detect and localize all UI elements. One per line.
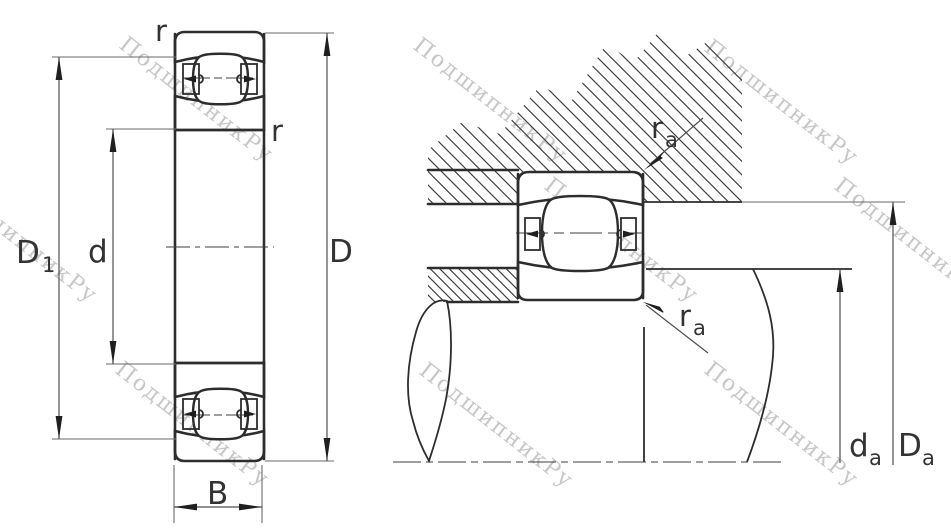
label-outer-D: D xyxy=(329,234,353,270)
label-da: d xyxy=(849,428,869,464)
barrel-roller xyxy=(193,54,248,105)
dimension-arrow xyxy=(56,57,63,80)
label-Da: D xyxy=(898,428,922,464)
shaft-break-curve xyxy=(747,269,773,462)
label-D1-subscript: 1 xyxy=(42,253,55,277)
dimension-arrow xyxy=(324,438,331,461)
label-chamfer-r-top: r xyxy=(155,14,167,48)
label-ra-top-subscript: a xyxy=(665,128,678,152)
label-da-subscript: a xyxy=(869,446,882,470)
dimension-arrow xyxy=(110,341,117,364)
watermark-text: ПодшипникРу xyxy=(699,357,863,493)
label-bore-d: d xyxy=(88,234,108,270)
label-width-B: B xyxy=(207,476,228,512)
label-ra-bottom: r xyxy=(679,299,691,333)
shaft-shoulder xyxy=(428,268,518,302)
dimension-d xyxy=(106,129,176,364)
dimension-arrow xyxy=(56,416,63,439)
watermark-text: ПодшипникРу xyxy=(110,357,274,493)
dimension-da xyxy=(837,269,844,463)
dimension-arrow xyxy=(324,33,331,56)
label-ra-bottom-subscript: a xyxy=(693,316,706,340)
watermark-text: ПодшипникРу xyxy=(829,173,951,309)
dimension-arrow xyxy=(837,269,844,292)
dimension-D xyxy=(265,33,334,461)
mounted-bearing xyxy=(516,172,644,300)
dimension-arrow xyxy=(110,129,117,152)
bearing-dimension-drawing: ПодшипникРу ПодшипникРу ПодшипникРу Подш… xyxy=(0,0,951,532)
housing-section xyxy=(428,30,742,204)
label-ra-top: r xyxy=(651,111,663,145)
barrel-roller xyxy=(193,389,248,440)
dimension-arrow xyxy=(174,504,197,511)
dimension-arrow xyxy=(239,504,262,511)
label-Da-subscript: a xyxy=(922,446,935,470)
label-D1: D xyxy=(16,235,40,271)
technical-drawing-canvas: ПодшипникРу ПодшипникРу ПодшипникРу Подш… xyxy=(0,0,951,532)
label-chamfer-r-inner: r xyxy=(271,114,283,148)
watermark-layer: ПодшипникРу ПодшипникРу ПодшипникРу Подш… xyxy=(0,32,951,494)
